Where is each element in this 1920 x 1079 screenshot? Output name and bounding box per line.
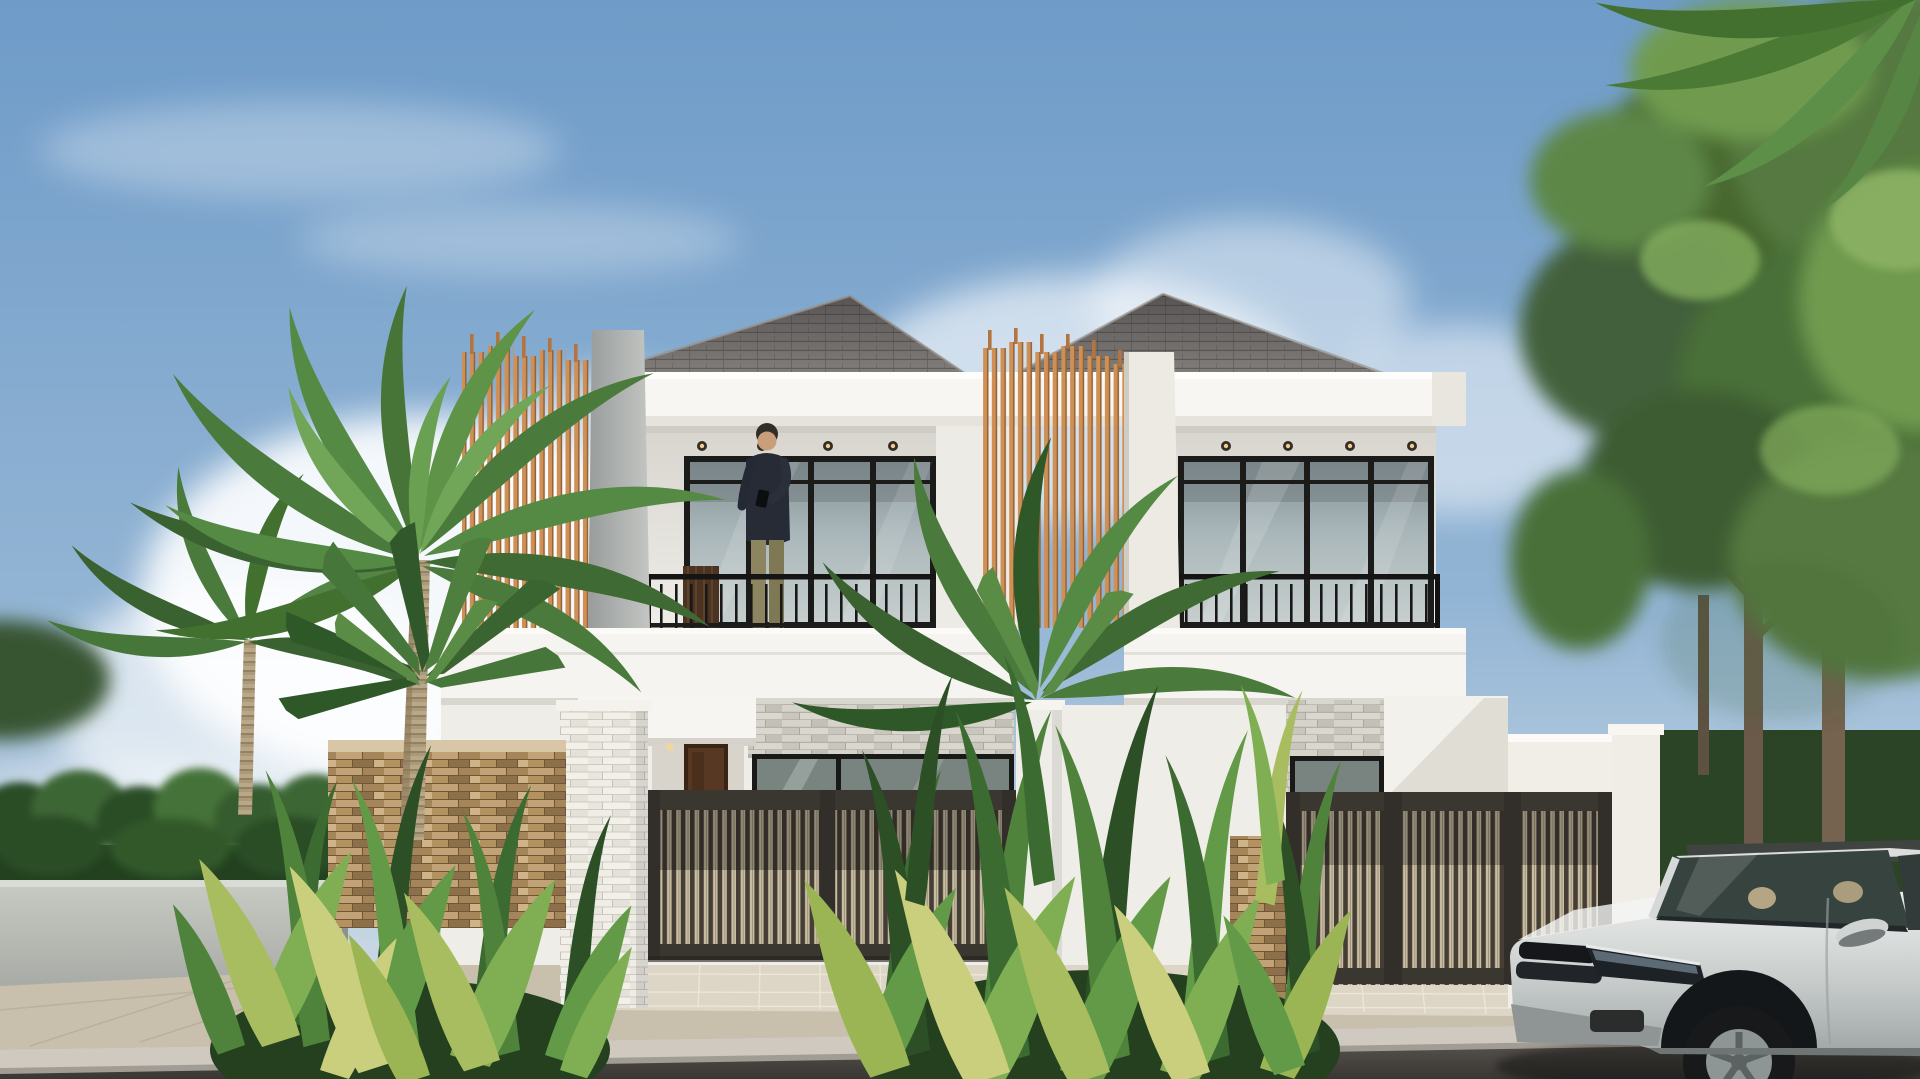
fin-shadow-edge (1124, 352, 1129, 628)
architectural-rendering (0, 0, 1920, 1079)
white-fin-right (1124, 352, 1180, 628)
right-unit (1172, 426, 1440, 630)
fascia-left (593, 372, 1012, 426)
render-canvas (0, 0, 1920, 1079)
wood-slat-screen-right (982, 328, 1132, 628)
diagonal-wall-right (1384, 696, 1508, 800)
